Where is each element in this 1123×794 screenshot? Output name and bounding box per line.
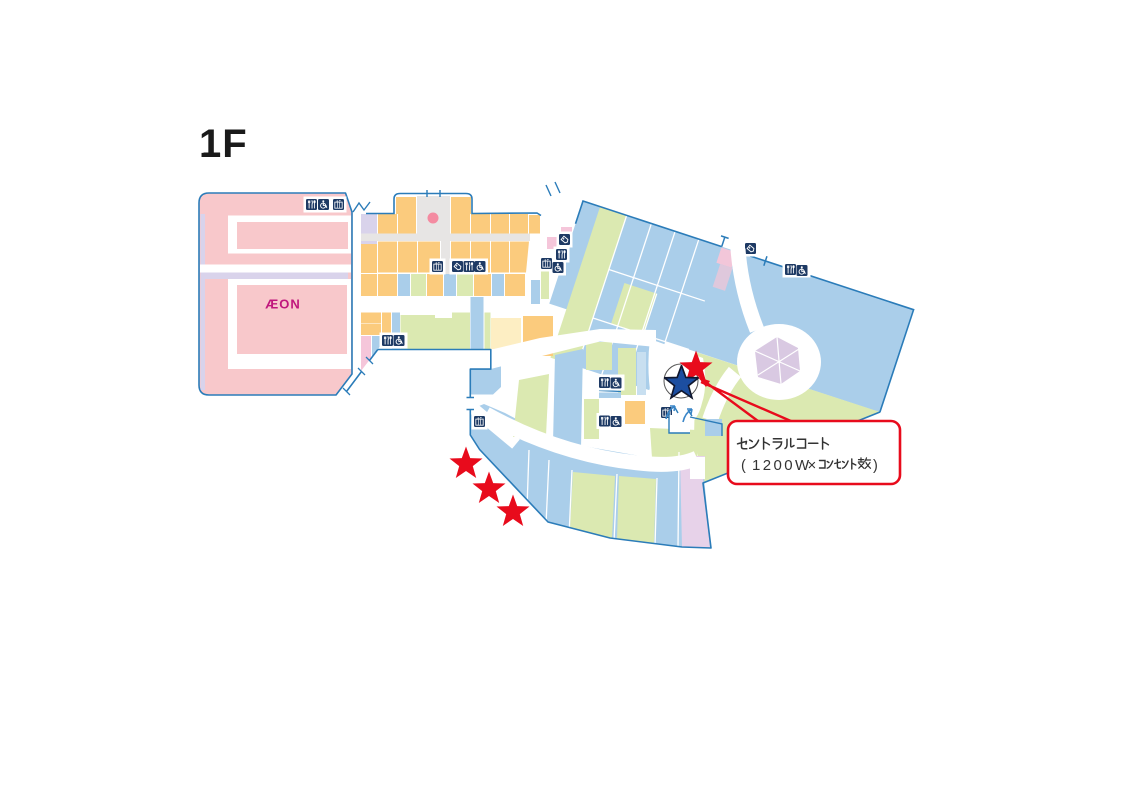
svg-text:1F: 1F <box>199 122 248 166</box>
svg-text:ÆON: ÆON <box>265 297 301 312</box>
svg-text:(: ( <box>741 458 746 474</box>
svg-text:×: × <box>808 457 817 474</box>
svg-text:): ) <box>873 458 878 474</box>
svg-text:1200W: 1200W <box>752 457 812 474</box>
